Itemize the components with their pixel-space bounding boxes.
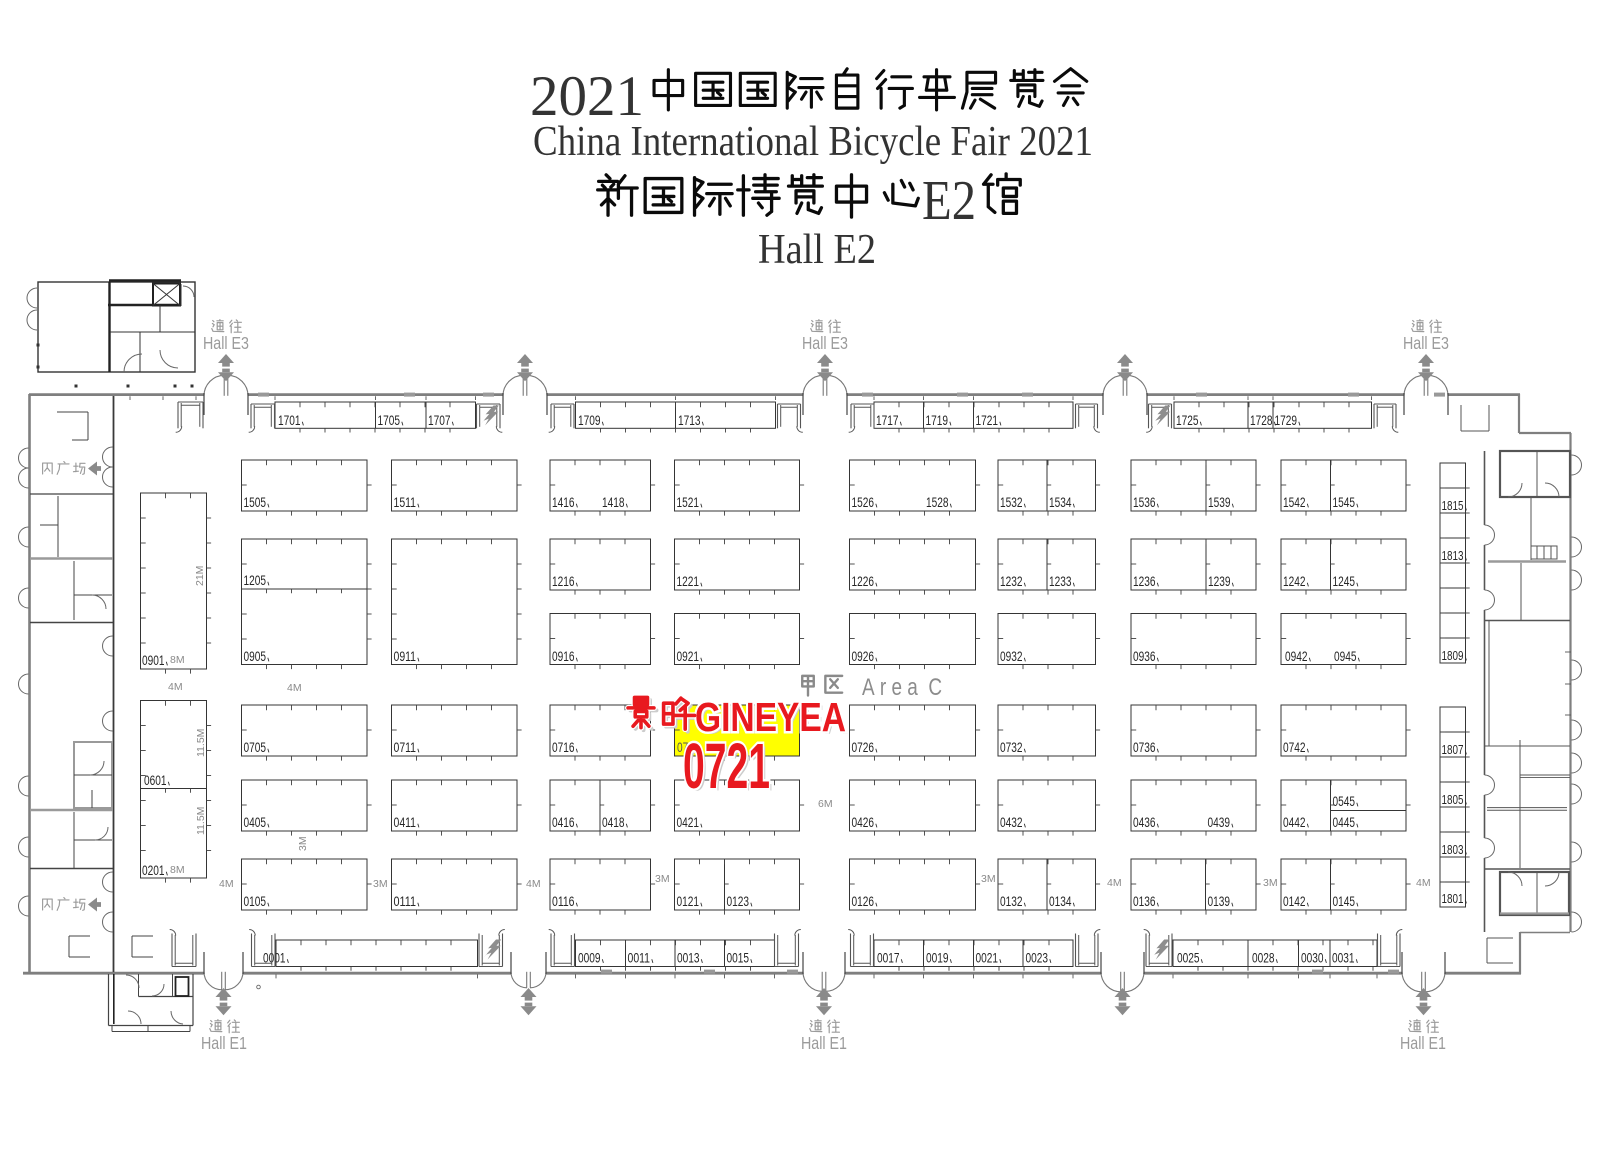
svg-text:0416: 0416: [552, 815, 575, 830]
svg-text:1705: 1705: [378, 413, 401, 428]
svg-text:1713: 1713: [678, 413, 701, 428]
svg-text:Hall E3: Hall E3: [802, 333, 848, 353]
svg-text:1242: 1242: [1283, 574, 1306, 589]
svg-text:0411: 0411: [394, 815, 417, 830]
svg-text:11.5M: 11.5M: [195, 729, 207, 757]
svg-text:0945: 0945: [1334, 649, 1357, 664]
svg-text:0711: 0711: [394, 740, 417, 755]
svg-text:1815: 1815: [1442, 498, 1464, 513]
svg-text:1233: 1233: [1049, 574, 1072, 589]
svg-text:0716: 0716: [552, 740, 575, 755]
svg-text:0116: 0116: [552, 894, 575, 909]
svg-text:0030: 0030: [1301, 951, 1324, 966]
svg-text:Hall E1: Hall E1: [201, 1033, 247, 1053]
svg-text:0013: 0013: [677, 951, 700, 966]
svg-text:1526: 1526: [852, 495, 875, 510]
svg-text:1416: 1416: [552, 495, 575, 510]
svg-text:1801: 1801: [1442, 891, 1464, 906]
svg-text:1521: 1521: [677, 495, 700, 510]
svg-text:4M: 4M: [287, 682, 302, 694]
svg-text:Hall E1: Hall E1: [801, 1033, 847, 1053]
svg-text:1717: 1717: [876, 413, 899, 428]
svg-text:1807: 1807: [1442, 742, 1464, 757]
svg-text:0439: 0439: [1208, 815, 1231, 830]
svg-text:1532: 1532: [1000, 495, 1023, 510]
svg-text:0705: 0705: [244, 740, 267, 755]
svg-text:0145: 0145: [1333, 894, 1356, 909]
svg-text:6M: 6M: [818, 798, 833, 810]
svg-text:1542: 1542: [1283, 495, 1306, 510]
svg-text:1701: 1701: [278, 413, 301, 428]
svg-text:4M: 4M: [526, 878, 541, 890]
svg-text:1418: 1418: [602, 495, 625, 510]
svg-text:Hall E3: Hall E3: [203, 333, 249, 353]
svg-text:8M: 8M: [170, 864, 185, 876]
svg-text:1545: 1545: [1333, 495, 1356, 510]
svg-text:0432: 0432: [1000, 815, 1023, 830]
svg-text:0736: 0736: [1133, 740, 1156, 755]
svg-text:3M: 3M: [373, 878, 388, 890]
svg-text:1803: 1803: [1442, 842, 1464, 857]
svg-text:0742: 0742: [1283, 740, 1306, 755]
svg-text:1809: 1809: [1442, 648, 1464, 663]
svg-text:1245: 1245: [1333, 574, 1356, 589]
svg-text:1709: 1709: [578, 413, 601, 428]
svg-text:4M: 4M: [168, 681, 183, 693]
svg-text:0017: 0017: [877, 951, 900, 966]
svg-text:0601: 0601: [144, 773, 167, 788]
svg-text:0028: 0028: [1252, 951, 1275, 966]
svg-text:1805: 1805: [1442, 792, 1464, 807]
svg-text:1205: 1205: [244, 573, 267, 588]
svg-text:1728: 1728: [1250, 413, 1273, 428]
svg-text:0121: 0121: [677, 894, 700, 909]
svg-text:0426: 0426: [852, 815, 875, 830]
svg-text:0936: 0936: [1133, 649, 1156, 664]
svg-text:0105: 0105: [244, 894, 267, 909]
svg-text:1707: 1707: [428, 413, 451, 428]
svg-text:1239: 1239: [1208, 574, 1231, 589]
svg-text:0023: 0023: [1026, 951, 1049, 966]
svg-text:21M: 21M: [194, 566, 206, 586]
svg-text:1534: 1534: [1049, 495, 1072, 510]
svg-text:0201: 0201: [142, 863, 165, 878]
svg-text:0436: 0436: [1133, 815, 1156, 830]
svg-text:1539: 1539: [1208, 495, 1231, 510]
svg-text:1226: 1226: [852, 574, 875, 589]
svg-text:4M: 4M: [1107, 877, 1122, 889]
svg-text:0132: 0132: [1000, 894, 1023, 909]
svg-text:1528: 1528: [926, 495, 949, 510]
svg-text:0726: 0726: [852, 740, 875, 755]
svg-text:1729: 1729: [1275, 413, 1298, 428]
svg-text:4M: 4M: [219, 878, 234, 890]
svg-text:11.5M: 11.5M: [195, 807, 207, 835]
svg-text:1221: 1221: [677, 574, 700, 589]
svg-text:1511: 1511: [394, 495, 417, 510]
svg-text:1536: 1536: [1133, 495, 1156, 510]
svg-text:1216: 1216: [552, 574, 575, 589]
svg-text:0445: 0445: [1333, 815, 1356, 830]
svg-text:0015: 0015: [727, 951, 750, 966]
svg-text:0921: 0921: [677, 649, 700, 664]
svg-text:1505: 1505: [244, 495, 267, 510]
svg-text:0421: 0421: [677, 815, 700, 830]
svg-text:3M: 3M: [1263, 877, 1278, 889]
svg-text:Hall E2: Hall E2: [758, 227, 876, 273]
svg-text:0916: 0916: [552, 649, 575, 664]
svg-text:0418: 0418: [602, 815, 625, 830]
svg-text:0942: 0942: [1285, 649, 1308, 664]
svg-text:0545: 0545: [1333, 794, 1356, 809]
svg-text:3M: 3M: [655, 873, 670, 885]
svg-text:E2: E2: [922, 170, 976, 232]
svg-text:1232: 1232: [1000, 574, 1023, 589]
svg-text:0111: 0111: [394, 894, 417, 909]
svg-text:0142: 0142: [1283, 894, 1306, 909]
svg-text:0721: 0721: [683, 730, 770, 802]
svg-text:0442: 0442: [1283, 815, 1306, 830]
svg-text:0011: 0011: [628, 951, 651, 966]
svg-text:0009: 0009: [578, 951, 601, 966]
svg-text:0932: 0932: [1000, 649, 1023, 664]
svg-text:0025: 0025: [1177, 951, 1200, 966]
svg-text:4M: 4M: [1416, 877, 1431, 889]
svg-text:Hall E3: Hall E3: [1403, 333, 1449, 353]
svg-text:1236: 1236: [1133, 574, 1156, 589]
svg-text:0134: 0134: [1049, 894, 1072, 909]
svg-text:1719: 1719: [926, 413, 949, 428]
svg-text:1725: 1725: [1176, 413, 1199, 428]
svg-text:8M: 8M: [170, 654, 185, 666]
svg-text:0136: 0136: [1133, 894, 1156, 909]
svg-text:0123: 0123: [727, 894, 750, 909]
svg-text:0019: 0019: [926, 951, 949, 966]
svg-text:0732: 0732: [1000, 740, 1023, 755]
svg-text:A r e a C: A r e a C: [862, 674, 942, 701]
svg-text:0405: 0405: [244, 815, 267, 830]
svg-text:0021: 0021: [976, 951, 999, 966]
svg-text:Hall E1: Hall E1: [1400, 1033, 1446, 1053]
svg-text:0905: 0905: [244, 649, 267, 664]
svg-text:1813: 1813: [1442, 548, 1464, 563]
svg-text:3M: 3M: [297, 836, 309, 851]
svg-text:0139: 0139: [1208, 894, 1231, 909]
svg-text:0126: 0126: [852, 894, 875, 909]
svg-text:0031: 0031: [1332, 951, 1355, 966]
svg-text:0911: 0911: [394, 649, 417, 664]
svg-text:0926: 0926: [852, 649, 875, 664]
svg-text:China International Bicycle Fa: China International Bicycle Fair 2021: [533, 119, 1093, 165]
svg-text:0901: 0901: [142, 653, 165, 668]
svg-text:3M: 3M: [981, 873, 996, 885]
svg-text:1721: 1721: [976, 413, 999, 428]
